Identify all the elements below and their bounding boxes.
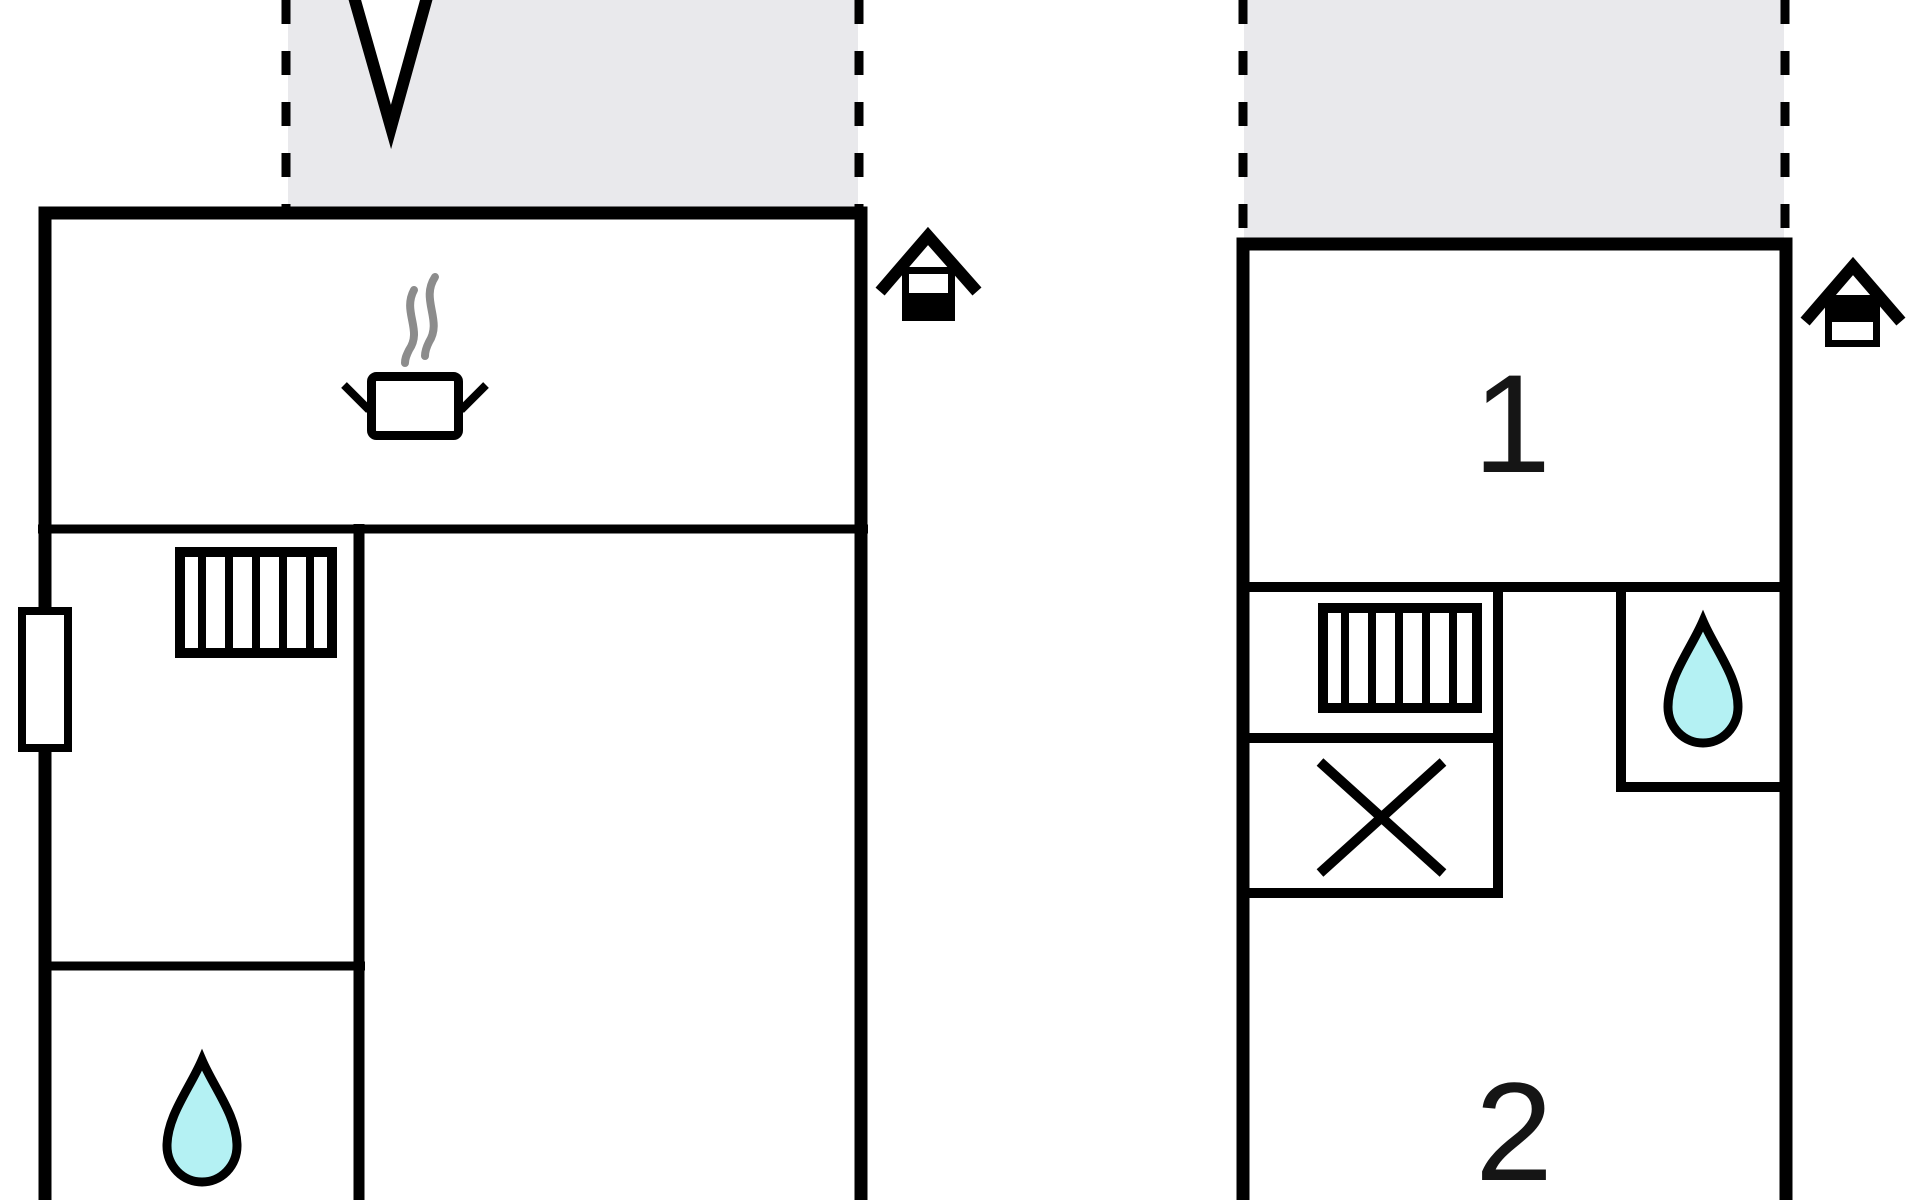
room-2-label: 2 (1475, 1053, 1553, 1200)
floor-plan-page: 1 2 (0, 0, 1920, 1200)
floor-plan-drawing: 1 2 (0, 0, 1920, 1200)
steam-icon (425, 277, 435, 356)
terrace-area (1244, 0, 1784, 244)
pot-body (372, 377, 459, 436)
main-building (22, 0, 973, 1200)
water-drop-icon (1668, 621, 1738, 743)
cross-box-icon (1320, 762, 1443, 873)
steam-icon (405, 290, 414, 363)
chimney-body-dark-half (1825, 295, 1880, 322)
door-icon (22, 611, 68, 748)
annex-building: 1 2 (1237, 0, 1897, 1200)
stairs-icon (1323, 608, 1477, 708)
stairs-icon (180, 552, 332, 653)
chimney-body-dark-half (902, 293, 955, 321)
water-drop-icon (167, 1060, 237, 1182)
room-1-label: 1 (1473, 345, 1551, 502)
chimney-house-icon (1809, 266, 1897, 344)
chimney-house-icon (884, 236, 973, 321)
cooking-pot-icon (344, 277, 486, 436)
pot-handle-right (461, 385, 486, 410)
exterior-walls (45, 213, 861, 1200)
pot-handle-left (344, 385, 369, 410)
